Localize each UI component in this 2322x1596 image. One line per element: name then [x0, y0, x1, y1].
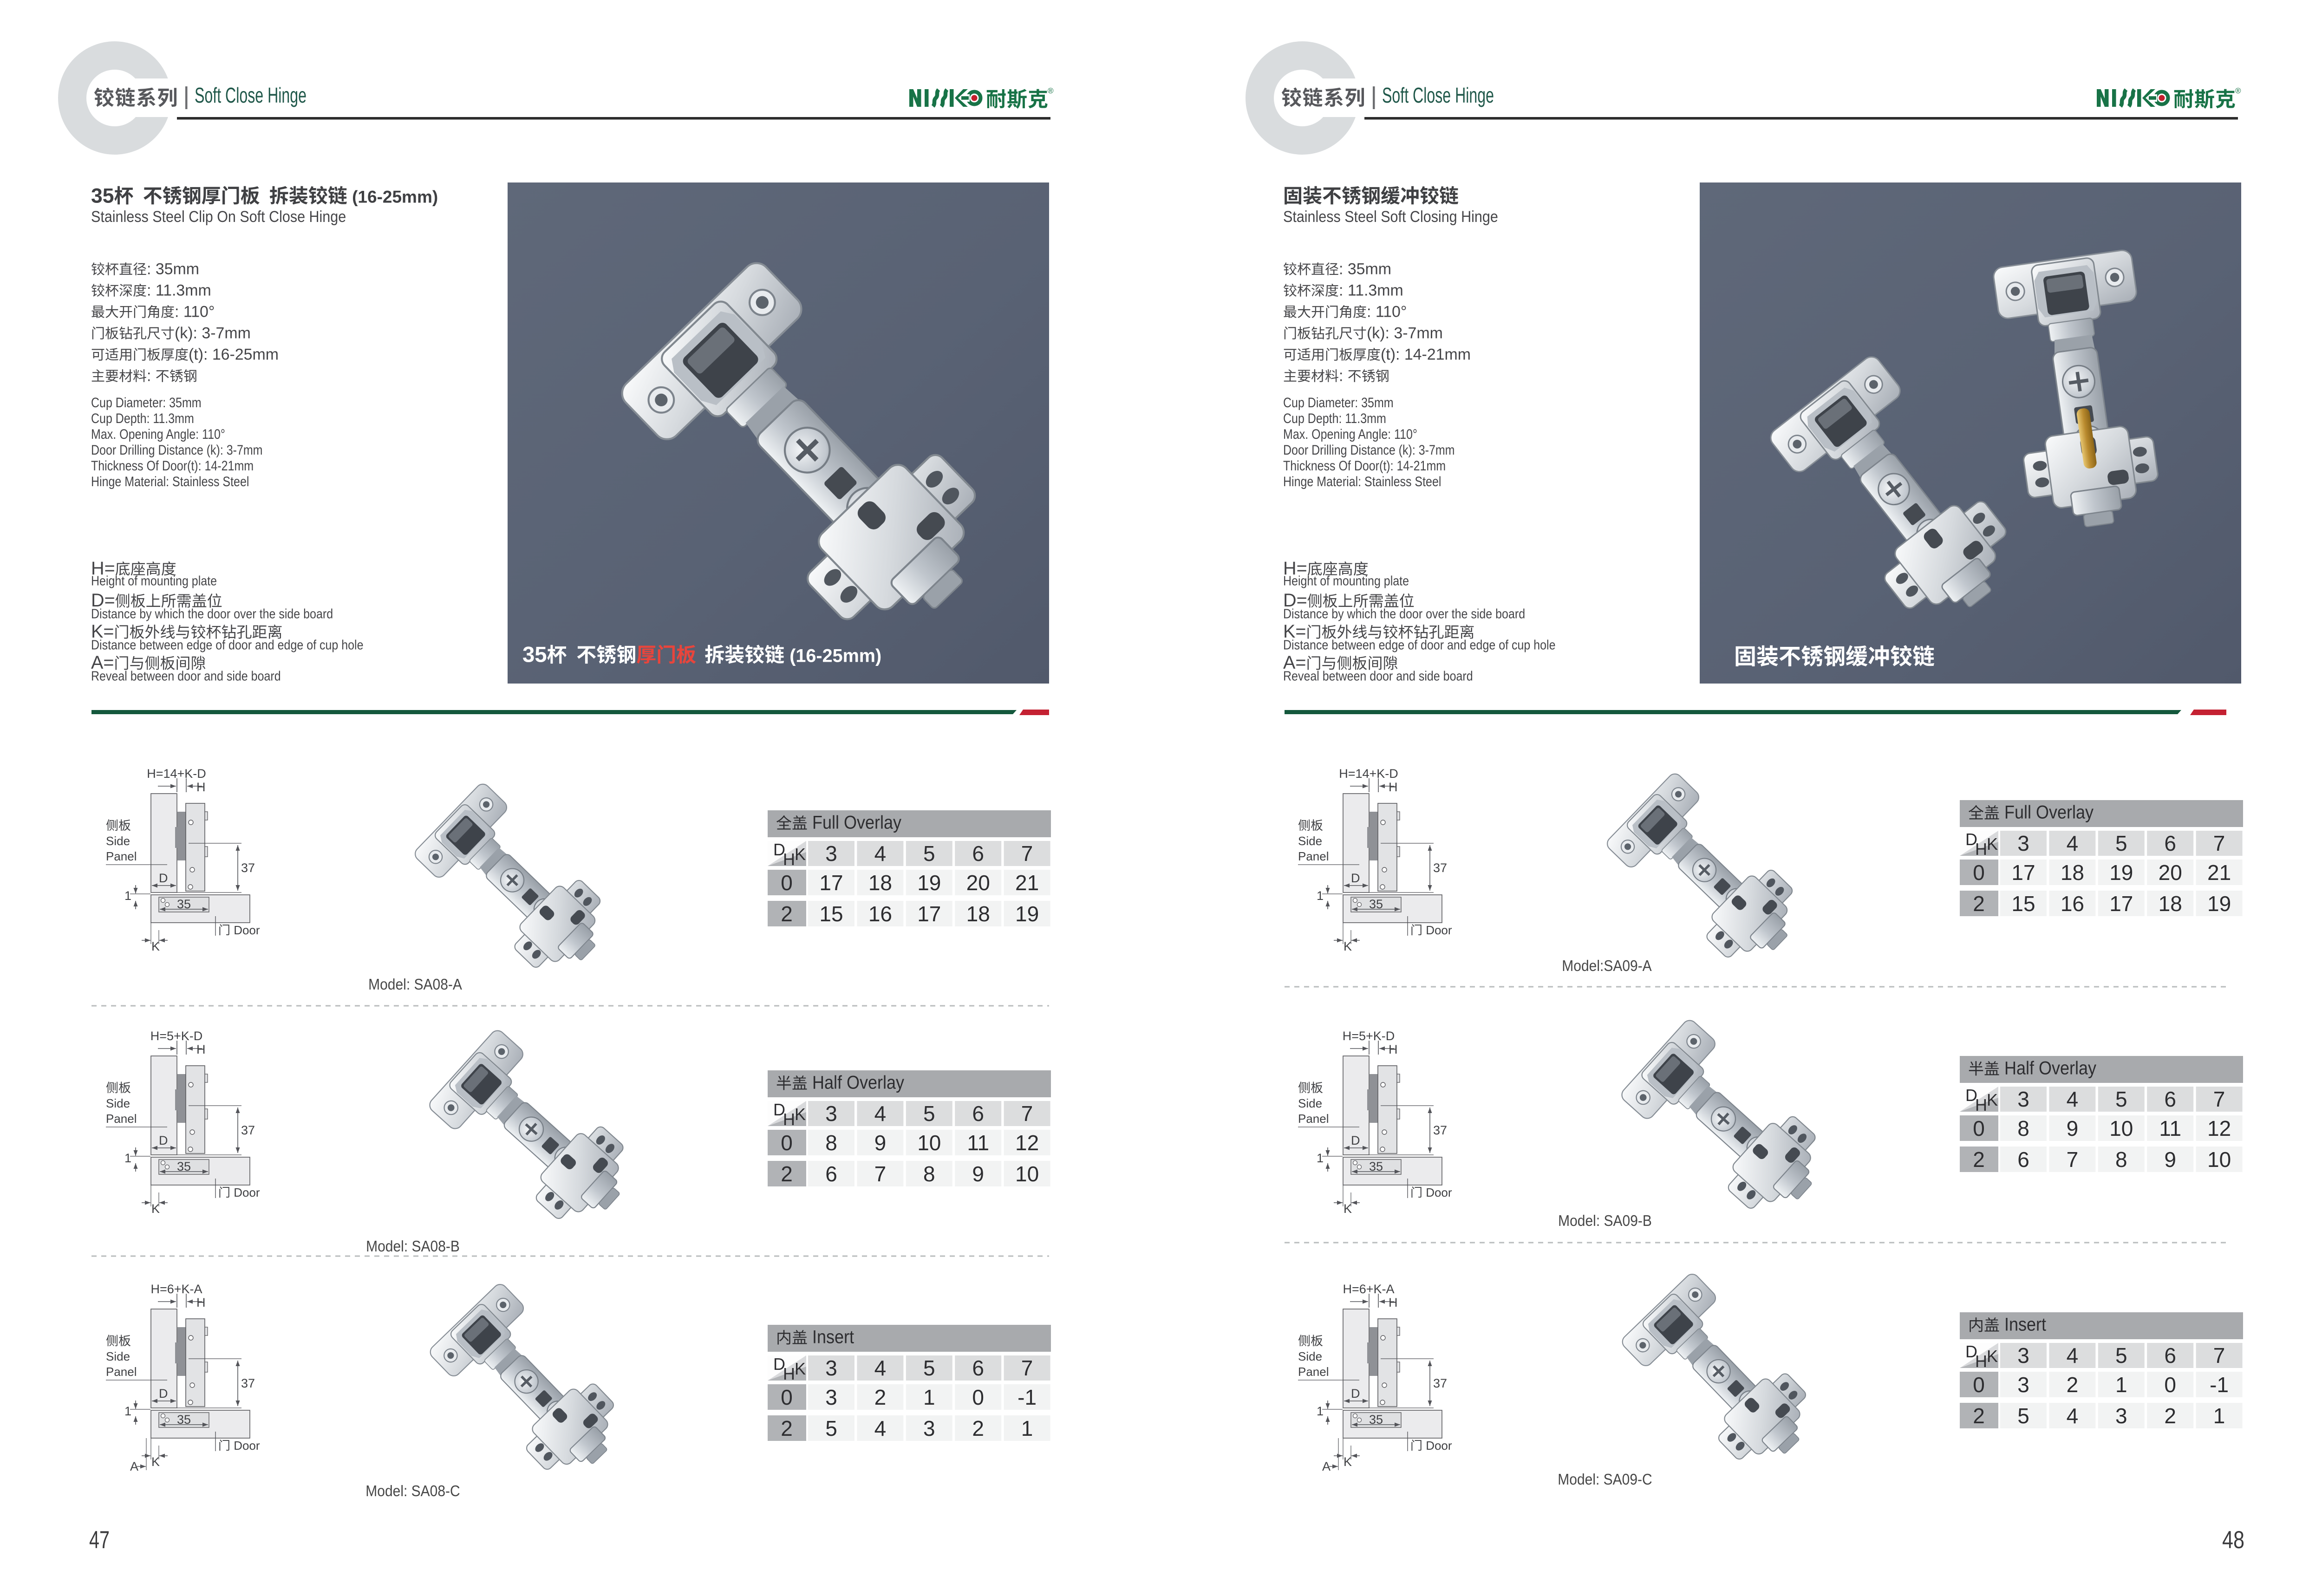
svg-text:1: 1: [2213, 1404, 2225, 1428]
svg-text:2: 2: [781, 902, 793, 926]
svg-text:7: 7: [2067, 1147, 2079, 1172]
svg-text:Reveal between door and side b: Reveal between door and side board: [1283, 669, 1473, 684]
svg-text:Panel: Panel: [106, 1365, 137, 1379]
svg-text:: 35mm: : 35mm: [1339, 260, 1391, 278]
svg-text:0: 0: [1973, 1373, 1985, 1397]
svg-text:Door Drilling Distance (k): 3-: Door Drilling Distance (k): 3-7mm: [91, 443, 263, 458]
svg-text:8: 8: [923, 1162, 935, 1186]
svg-text:K: K: [1344, 939, 1352, 953]
svg-text:Max. Opening Angle: 110°: Max. Opening Angle: 110°: [1283, 427, 1417, 442]
svg-text:37: 37: [241, 1376, 255, 1390]
svg-text:Distance between edge of door: Distance between edge of door and edge o…: [1283, 638, 1556, 653]
svg-text:K: K: [1987, 1347, 1998, 1366]
svg-text:5: 5: [2115, 1087, 2127, 1111]
svg-text:3: 3: [2017, 1343, 2029, 1368]
svg-text:35: 35: [91, 185, 114, 208]
svg-text:D: D: [1351, 1387, 1360, 1401]
svg-text:Hinge Material: Stainless Stee: Hinge Material: Stainless Steel: [91, 474, 249, 489]
svg-text:7: 7: [1021, 1101, 1033, 1126]
svg-text:2: 2: [1973, 1404, 1985, 1428]
svg-text:2: 2: [781, 1162, 793, 1186]
svg-text:A: A: [130, 1459, 138, 1473]
svg-text:: 110°: : 110°: [175, 303, 215, 320]
svg-text:0: 0: [1973, 1116, 1985, 1140]
svg-text:Model: SA09-B: Model: SA09-B: [1558, 1212, 1652, 1229]
svg-text:Door: Door: [234, 1186, 260, 1199]
svg-text:0: 0: [781, 1385, 793, 1409]
svg-text:9: 9: [2164, 1147, 2176, 1172]
svg-text:Door: Door: [234, 923, 260, 937]
svg-text:Model: SA09-C: Model: SA09-C: [1558, 1471, 1652, 1488]
svg-text:2: 2: [2067, 1373, 2079, 1397]
svg-text:Soft Close Hinge: Soft Close Hinge: [195, 83, 307, 107]
svg-text:Cup Diameter: 35mm: Cup Diameter: 35mm: [91, 395, 202, 410]
svg-text::: :: [1339, 367, 1343, 384]
svg-text:Thickness Of Door(t): 14-21mm: Thickness Of Door(t): 14-21mm: [91, 458, 254, 474]
svg-text:9: 9: [972, 1162, 984, 1186]
svg-text:4: 4: [874, 841, 887, 866]
svg-text:1: 1: [124, 889, 131, 903]
svg-text:D: D: [159, 871, 168, 885]
svg-text:3: 3: [825, 1356, 837, 1380]
svg-text::: :: [147, 367, 151, 384]
svg-text:H=6+K-A: H=6+K-A: [150, 1282, 202, 1296]
svg-text:12: 12: [2207, 1116, 2231, 1140]
svg-text:0: 0: [1973, 860, 1985, 885]
svg-text:Insert: Insert: [2004, 1315, 2046, 1335]
svg-text:37: 37: [1433, 1123, 1447, 1137]
svg-text:H: H: [1975, 1352, 1987, 1371]
svg-text:3: 3: [825, 841, 837, 866]
svg-text:10: 10: [1015, 1162, 1039, 1186]
svg-text:H: H: [1389, 1296, 1398, 1309]
svg-text:Distance by which the door ove: Distance by which the door over the side…: [1283, 607, 1525, 622]
svg-text:17: 17: [819, 871, 843, 895]
svg-text:2: 2: [1973, 892, 1985, 916]
svg-text:H=14+K-D: H=14+K-D: [147, 767, 206, 781]
svg-text:H: H: [196, 1296, 206, 1309]
svg-text:5: 5: [2115, 831, 2127, 855]
svg-text:®: ®: [1048, 86, 1054, 95]
svg-text:-1: -1: [2210, 1373, 2229, 1397]
svg-text:5: 5: [923, 841, 935, 866]
svg-text:6: 6: [972, 841, 984, 866]
svg-text:18: 18: [2159, 892, 2182, 916]
svg-text:6: 6: [2164, 1343, 2176, 1368]
svg-text:K: K: [795, 1105, 806, 1124]
svg-text:15: 15: [819, 902, 843, 926]
svg-text:-1: -1: [1018, 1385, 1037, 1409]
svg-text:7: 7: [874, 1162, 887, 1186]
svg-text:47: 47: [89, 1526, 110, 1554]
svg-text:(t): 14-21mm: (t): 14-21mm: [1381, 345, 1471, 363]
svg-text:: 110°: : 110°: [1367, 303, 1407, 320]
svg-text:Hinge Material: Stainless Stee: Hinge Material: Stainless Steel: [1283, 474, 1441, 489]
svg-text:4: 4: [874, 1416, 887, 1440]
svg-text:Soft Close Hinge: Soft Close Hinge: [1382, 83, 1494, 107]
svg-text:Side: Side: [106, 1349, 130, 1363]
svg-text:Stainless Steel Soft Closing H: Stainless Steel Soft Closing Hinge: [1283, 208, 1498, 226]
svg-text:0: 0: [2164, 1373, 2176, 1397]
svg-text:Half Overlay: Half Overlay: [2004, 1058, 2096, 1079]
svg-text:Side: Side: [106, 834, 130, 848]
svg-text:K: K: [795, 1359, 806, 1378]
svg-text:7: 7: [2213, 1087, 2225, 1111]
svg-text:19: 19: [2109, 860, 2133, 885]
svg-text:2: 2: [781, 1416, 793, 1440]
svg-text:3: 3: [2017, 831, 2029, 855]
svg-text:9: 9: [874, 1131, 887, 1155]
svg-text:4: 4: [2067, 1343, 2079, 1368]
svg-text:Distance by which the door ove: Distance by which the door over the side…: [91, 607, 333, 622]
svg-text:H: H: [196, 780, 206, 794]
svg-text:D: D: [159, 1133, 168, 1147]
svg-text:Thickness Of Door(t): 14-21mm: Thickness Of Door(t): 14-21mm: [1283, 458, 1446, 474]
svg-text:6: 6: [2164, 1087, 2176, 1111]
svg-text:H: H: [1975, 840, 1987, 859]
svg-text:17: 17: [2109, 892, 2133, 916]
svg-text:9: 9: [2067, 1116, 2079, 1140]
svg-text:5: 5: [923, 1356, 935, 1380]
svg-text:12: 12: [1015, 1131, 1039, 1155]
svg-text:Model: SA08-C: Model: SA08-C: [365, 1482, 460, 1499]
svg-text:3: 3: [923, 1416, 935, 1440]
svg-text:H=5+K-D: H=5+K-D: [1343, 1029, 1395, 1043]
svg-text:Max. Opening Angle: 110°: Max. Opening Angle: 110°: [91, 427, 225, 442]
svg-text:H: H: [1389, 780, 1398, 794]
svg-text:4: 4: [874, 1356, 887, 1380]
svg-text:K: K: [795, 845, 806, 864]
svg-text:5: 5: [2115, 1343, 2127, 1368]
svg-text:48: 48: [2222, 1526, 2244, 1554]
svg-text:6: 6: [972, 1356, 984, 1380]
svg-text:2: 2: [874, 1385, 887, 1409]
svg-text:8: 8: [2017, 1116, 2029, 1140]
svg-text:18: 18: [966, 902, 990, 926]
svg-text:Panel: Panel: [106, 1112, 137, 1126]
svg-text:3: 3: [2115, 1404, 2127, 1428]
svg-text:(t): 16-25mm: (t): 16-25mm: [189, 345, 279, 363]
svg-text:6: 6: [972, 1101, 984, 1126]
svg-text:(16-25mm): (16-25mm): [789, 645, 881, 666]
svg-text:18: 18: [868, 871, 892, 895]
svg-text:K: K: [151, 1202, 160, 1216]
svg-text:H=14+K-D: H=14+K-D: [1339, 767, 1398, 781]
svg-text:Stainless Steel Clip On Soft C: Stainless Steel Clip On Soft Close Hinge: [91, 208, 346, 226]
svg-text:8: 8: [2115, 1147, 2127, 1172]
svg-text:3: 3: [2017, 1373, 2029, 1397]
svg-text:21: 21: [1015, 871, 1039, 895]
svg-text:Cup Depth: 11.3mm: Cup Depth: 11.3mm: [91, 411, 194, 426]
svg-text:Cup Depth: 11.3mm: Cup Depth: 11.3mm: [1283, 411, 1386, 426]
svg-text:D: D: [1351, 1133, 1360, 1147]
svg-text:11: 11: [2159, 1116, 2181, 1140]
svg-text:0: 0: [781, 1131, 793, 1155]
svg-text:Full Overlay: Full Overlay: [2004, 802, 2094, 823]
svg-text:Reveal between door and side b: Reveal between door and side board: [91, 669, 281, 684]
svg-text:18: 18: [2061, 860, 2084, 885]
svg-text:2: 2: [2164, 1404, 2176, 1428]
svg-text:37: 37: [1433, 861, 1447, 875]
svg-text:1: 1: [1317, 1404, 1324, 1418]
svg-text:1: 1: [1021, 1416, 1033, 1440]
svg-text:4: 4: [2067, 1087, 2079, 1111]
svg-text:K: K: [151, 1455, 160, 1469]
svg-text:Insert: Insert: [812, 1327, 854, 1348]
svg-text:16: 16: [868, 902, 892, 926]
svg-text:6: 6: [2017, 1147, 2029, 1172]
svg-text:1: 1: [1317, 1151, 1324, 1165]
svg-text:Side: Side: [106, 1096, 130, 1110]
svg-text:1: 1: [923, 1385, 935, 1409]
svg-text:A: A: [1322, 1459, 1331, 1473]
svg-text:17: 17: [917, 902, 941, 926]
svg-text:35: 35: [522, 642, 547, 667]
svg-text:H: H: [783, 1364, 795, 1383]
svg-text:Height of mounting plate: Height of mounting plate: [1283, 574, 1409, 589]
svg-text:: 11.3mm: : 11.3mm: [1339, 281, 1403, 299]
svg-text:Model: SA08-A: Model: SA08-A: [368, 976, 462, 993]
svg-text:(k): 3-7mm: (k): 3-7mm: [1367, 324, 1443, 342]
svg-text:3: 3: [2017, 1087, 2029, 1111]
svg-text:7: 7: [2213, 1343, 2225, 1368]
svg-text:K: K: [1344, 1455, 1352, 1469]
svg-text:10: 10: [2109, 1116, 2133, 1140]
svg-text:K: K: [151, 939, 160, 953]
svg-text:7: 7: [1021, 841, 1033, 866]
svg-text:: 11.3mm: : 11.3mm: [147, 281, 211, 299]
svg-text:K: K: [1987, 834, 1998, 853]
svg-text:Panel: Panel: [106, 849, 137, 863]
svg-text:H: H: [783, 1110, 795, 1129]
svg-text:®: ®: [2235, 86, 2241, 95]
svg-text:0: 0: [972, 1385, 984, 1409]
svg-text:2: 2: [972, 1416, 984, 1440]
svg-text:K: K: [1987, 1090, 1998, 1109]
svg-text:16: 16: [2061, 892, 2084, 916]
svg-text:4: 4: [2067, 831, 2079, 855]
svg-text:K: K: [1344, 1202, 1352, 1216]
svg-text:37: 37: [241, 1123, 255, 1137]
svg-text:H=6+K-A: H=6+K-A: [1343, 1282, 1394, 1296]
svg-text:0: 0: [781, 871, 793, 895]
svg-text:Door Drilling Distance (k): 3-: Door Drilling Distance (k): 3-7mm: [1283, 443, 1455, 458]
svg-text:(16-25mm): (16-25mm): [352, 188, 438, 207]
svg-text:H: H: [196, 1042, 206, 1056]
svg-text:(k): 3-7mm: (k): 3-7mm: [175, 324, 251, 342]
svg-text:Model:SA09-A: Model:SA09-A: [1562, 957, 1651, 974]
svg-text:20: 20: [966, 871, 990, 895]
svg-text:4: 4: [2067, 1404, 2079, 1428]
svg-text:17: 17: [2011, 860, 2035, 885]
svg-text:Model: SA08-B: Model: SA08-B: [366, 1238, 460, 1255]
svg-text:Door: Door: [1426, 1439, 1452, 1453]
svg-text:2: 2: [1973, 1147, 1985, 1172]
svg-text:Door: Door: [1426, 1186, 1452, 1199]
svg-text:6: 6: [825, 1162, 837, 1186]
svg-text:3: 3: [825, 1101, 837, 1126]
svg-text:1: 1: [124, 1151, 131, 1165]
svg-text:7: 7: [2213, 831, 2225, 855]
svg-text:5: 5: [825, 1416, 837, 1440]
svg-text:Half Overlay: Half Overlay: [812, 1073, 904, 1093]
svg-text:H: H: [783, 850, 795, 869]
svg-text:1: 1: [2115, 1373, 2127, 1397]
svg-text:1: 1: [124, 1404, 131, 1418]
svg-text:20: 20: [2159, 860, 2182, 885]
svg-text:Door: Door: [1426, 923, 1452, 937]
svg-text:Distance between edge of door: Distance between edge of door and edge o…: [91, 638, 364, 653]
svg-text:H: H: [1975, 1095, 1987, 1114]
svg-text:: 35mm: : 35mm: [147, 260, 199, 278]
svg-text:19: 19: [2207, 892, 2231, 916]
svg-text:4: 4: [874, 1101, 887, 1126]
svg-text:Panel: Panel: [1298, 1112, 1329, 1126]
svg-text:6: 6: [2164, 831, 2176, 855]
svg-text:8: 8: [825, 1131, 837, 1155]
svg-text:15: 15: [2011, 892, 2035, 916]
svg-text:Door: Door: [234, 1439, 260, 1453]
svg-text:37: 37: [241, 861, 255, 875]
svg-text:H: H: [1389, 1042, 1398, 1056]
svg-text:Height of mounting plate: Height of mounting plate: [91, 574, 217, 589]
svg-text:19: 19: [1015, 902, 1039, 926]
svg-text:H=5+K-D: H=5+K-D: [150, 1029, 203, 1043]
svg-text:D: D: [1351, 871, 1360, 885]
svg-text:5: 5: [923, 1101, 935, 1126]
svg-text:Side: Side: [1298, 1096, 1322, 1110]
svg-text:11: 11: [967, 1131, 989, 1155]
svg-text:5: 5: [2017, 1404, 2029, 1428]
svg-text:19: 19: [917, 871, 941, 895]
svg-text:21: 21: [2207, 860, 2231, 885]
svg-text:Cup Diameter: 35mm: Cup Diameter: 35mm: [1283, 395, 1394, 410]
svg-text:10: 10: [917, 1131, 941, 1155]
svg-text:Panel: Panel: [1298, 1365, 1329, 1379]
svg-text:Side: Side: [1298, 834, 1322, 848]
svg-text:Panel: Panel: [1298, 849, 1329, 863]
svg-text:10: 10: [2207, 1147, 2231, 1172]
svg-text:3: 3: [825, 1385, 837, 1409]
svg-text:Side: Side: [1298, 1349, 1322, 1363]
svg-text:7: 7: [1021, 1356, 1033, 1380]
svg-text:D: D: [159, 1387, 168, 1401]
svg-text:Full Overlay: Full Overlay: [812, 813, 901, 833]
svg-text:1: 1: [1317, 889, 1324, 903]
svg-text:37: 37: [1433, 1376, 1447, 1390]
